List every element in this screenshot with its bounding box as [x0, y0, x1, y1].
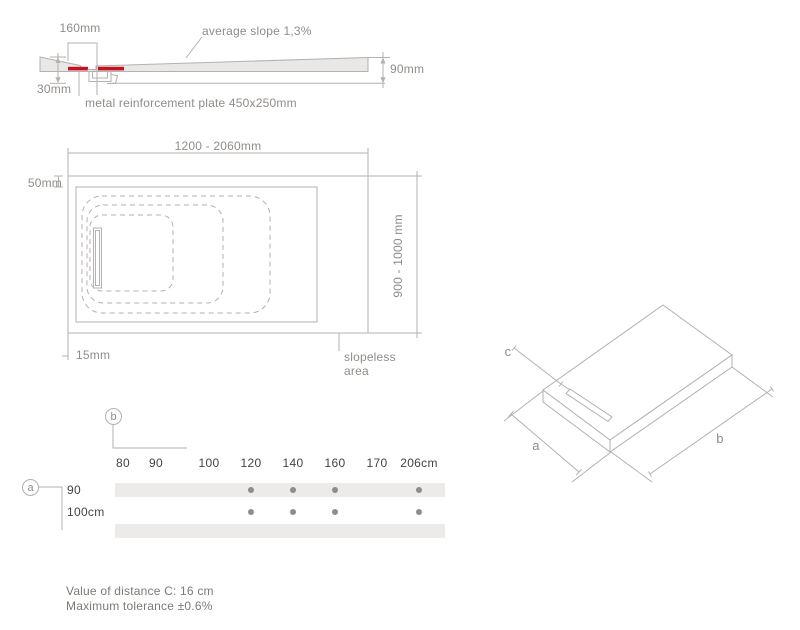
availability-dot [416, 509, 422, 515]
table-column-header: 80 [116, 456, 130, 470]
note-distance-c: Value of distance C: 16 cm [66, 584, 214, 598]
table-column-header: 120 [241, 456, 262, 470]
table-column-header: 100 [199, 456, 220, 470]
product-spec-sheet: 160mm average slope 1,3% 90mm 30mm metal… [0, 0, 800, 630]
availability-dot [290, 509, 296, 515]
table-column-header: 160 [325, 456, 346, 470]
availability-dot [290, 487, 296, 493]
table-column-header: 140 [283, 456, 304, 470]
availability-dot [416, 487, 422, 493]
note-tolerance: Maximum tolerance ±0.6% [66, 599, 213, 613]
availability-dot [332, 509, 338, 515]
table-column-header: 90 [149, 456, 163, 470]
size-availability-table: 8090100120140160170206cm90100cm [0, 0, 800, 630]
availability-dot [332, 487, 338, 493]
table-row-label: 90 [67, 483, 81, 497]
availability-dot [248, 509, 254, 515]
table-column-header: 170 [367, 456, 388, 470]
availability-dot [248, 487, 254, 493]
table-row-label: 100cm [67, 505, 105, 519]
table-column-header: 206cm [400, 456, 438, 470]
